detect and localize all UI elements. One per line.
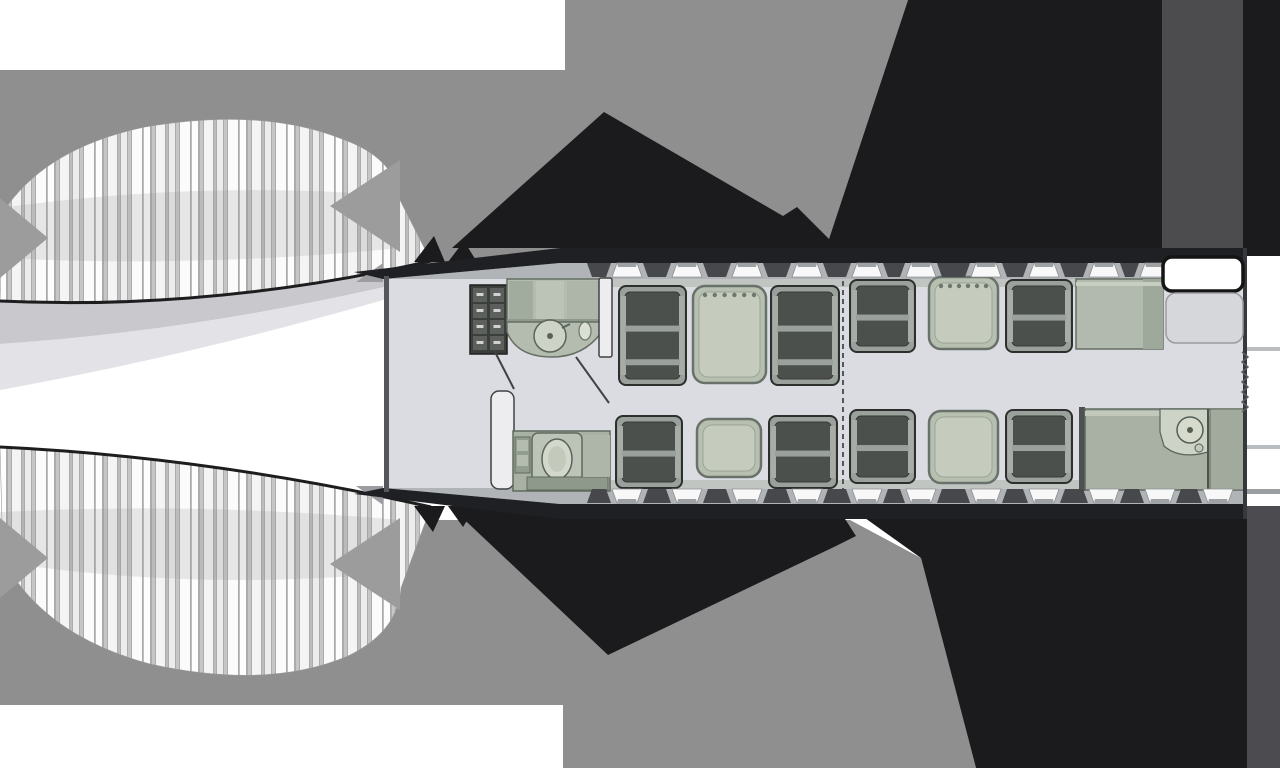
passenger-seat <box>619 286 686 385</box>
window-shade <box>677 263 697 267</box>
passenger-seat <box>1006 280 1072 352</box>
table-grommet-icon <box>939 284 943 288</box>
window-shade <box>857 263 877 267</box>
door-bar <box>1162 0 1243 259</box>
table-grommet-icon <box>703 293 707 297</box>
credenza-top <box>1076 282 1163 286</box>
window-shade <box>911 499 931 503</box>
window-shade <box>857 499 877 503</box>
galley-section <box>536 281 564 321</box>
side-table <box>697 419 761 477</box>
lavatory-wall <box>599 278 612 357</box>
drawer-handle-icon <box>477 293 484 296</box>
window-shade <box>1094 499 1114 503</box>
window-shade <box>1150 499 1170 503</box>
continuation-line <box>1247 347 1280 351</box>
windows-bottom <box>587 489 1233 503</box>
lavatory-wall-aft <box>1079 407 1085 491</box>
club-table <box>929 411 998 483</box>
galley-sink-inner <box>548 446 566 472</box>
window-shade <box>737 263 757 267</box>
toilet-center <box>547 333 553 339</box>
drawer-handle-icon <box>494 341 501 344</box>
conference-table <box>693 286 766 383</box>
window-shade <box>976 499 996 503</box>
fuselage-right-cut <box>1247 256 1280 506</box>
table-grommet-icon <box>966 284 970 288</box>
table-grommet-icon <box>984 284 988 288</box>
galley-side <box>583 435 610 477</box>
galley-base-plate <box>527 477 608 490</box>
galley-section <box>509 281 533 321</box>
table-grommet-icon <box>975 284 979 288</box>
galley-drawer <box>517 440 528 451</box>
aft-cabinet-right <box>1210 409 1245 490</box>
tailcone <box>0 390 386 447</box>
toilet-flush <box>1195 444 1203 452</box>
passenger-seat <box>771 286 839 385</box>
passenger-seat <box>769 416 837 488</box>
toilet-center <box>1187 427 1193 433</box>
window-shade <box>911 263 931 267</box>
passenger-seat <box>850 280 915 352</box>
table-grommet-icon <box>752 293 756 297</box>
continuation-line <box>1247 445 1280 449</box>
passenger-seat <box>1006 410 1072 483</box>
passenger-seat <box>850 410 915 483</box>
table-grommet-icon <box>713 293 717 297</box>
table-grommet-icon <box>957 284 961 288</box>
drawer-handle-icon <box>477 325 484 328</box>
window-shade <box>617 263 637 267</box>
table-grommet-icon <box>948 284 952 288</box>
window-shade <box>1034 499 1054 503</box>
sink-icon <box>579 322 591 340</box>
window-shade <box>737 499 757 503</box>
partition-pillar <box>491 391 514 489</box>
drawer-handle-icon <box>477 341 484 344</box>
window-shade <box>617 499 637 503</box>
passenger-seat <box>616 416 682 488</box>
table-grommet-icon <box>732 293 736 297</box>
galley-section <box>567 281 600 321</box>
table-grommet-icon <box>722 293 726 297</box>
window-shade <box>976 263 996 267</box>
floorplan-svg <box>0 0 1280 768</box>
corner-strip <box>1247 505 1280 768</box>
entry-door-panel <box>1166 293 1243 343</box>
window-shade <box>797 499 817 503</box>
window-shade <box>1094 263 1114 267</box>
window-shade <box>797 263 817 267</box>
cabin-left-wall <box>384 276 389 492</box>
entry-door <box>1163 257 1243 291</box>
aircraft-floorplan-image <box>0 0 1280 768</box>
drawer-handle-icon <box>494 325 501 328</box>
drawer-handle-icon <box>494 293 501 296</box>
window-shade <box>1034 263 1054 267</box>
club-table <box>929 277 998 349</box>
window-gap <box>937 489 970 503</box>
continuation-line <box>1247 489 1280 494</box>
window-shade <box>677 499 697 503</box>
drawer-handle-icon <box>494 309 501 312</box>
window-shade <box>1208 499 1228 503</box>
credenza-shade <box>1143 279 1163 349</box>
fuselage-continuation <box>1247 256 1280 506</box>
galley-drawer <box>517 455 528 466</box>
window-gap <box>937 263 970 277</box>
table-grommet-icon <box>742 293 746 297</box>
drawer-handle-icon <box>477 309 484 312</box>
